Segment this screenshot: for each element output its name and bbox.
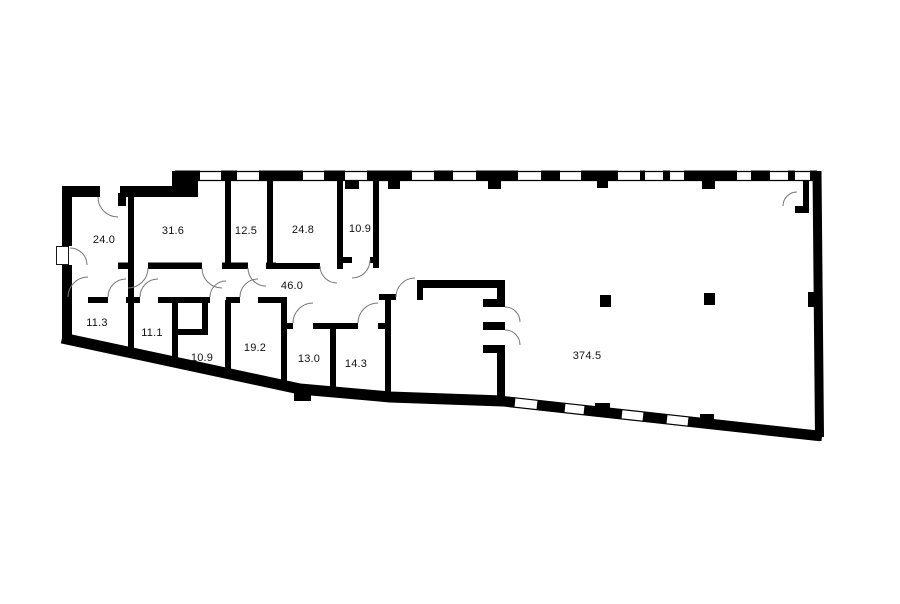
wall-14-3-east: [385, 300, 391, 397]
column-hall-east: [704, 293, 715, 305]
partition-10-9-19-2: [225, 300, 231, 376]
exterior-walls: [57, 171, 823, 441]
pilaster-right-wall: [808, 292, 818, 307]
room-label-12-5: 12.5: [235, 225, 257, 237]
wall-lobby-east-c: [497, 345, 505, 402]
floor-plan-canvas: 24.0 31.6 12.5 24.8 10.9 46.0 11.3 11.1 …: [0, 0, 900, 604]
room-label-374-5: 374.5: [573, 350, 602, 362]
room-label-46-0: 46.0: [281, 280, 303, 292]
left-window-frame: [57, 247, 69, 265]
wall-lobby-east-b: [497, 322, 505, 330]
wall-24-8-bottom: [273, 263, 320, 269]
room-label-10-9-bottom: 10.9: [191, 352, 213, 364]
closet-bottom-wall: [172, 329, 208, 335]
column-hall-west: [600, 295, 611, 307]
top-wall-segments: [175, 171, 817, 182]
room-label-13-0: 13.0: [298, 353, 320, 365]
room-label-19-2: 19.2: [244, 342, 266, 354]
bottom-wall-segments: [501, 401, 822, 436]
partition-12-5-24-8: [267, 181, 273, 263]
room-label-14-3: 14.3: [345, 358, 367, 370]
room-label-10-9-top: 10.9: [349, 223, 371, 235]
wall-left-lower: [62, 265, 72, 342]
room-label-24-8: 24.8: [292, 224, 314, 236]
wall-passage-jog: [379, 294, 396, 300]
partition-13-0-14-3: [330, 323, 336, 392]
partition-24-8-10-9: [337, 181, 343, 269]
wall-10-9-bottom-a: [343, 257, 352, 263]
room-label-11-1: 11.1: [141, 327, 162, 339]
floor-plan-svg: [0, 0, 900, 604]
partition-11-3-11-1: [128, 300, 134, 356]
partition-19-2-13-0: [281, 297, 287, 386]
room-label-31-6: 31.6: [162, 225, 184, 237]
wall-top-low-right: [120, 186, 178, 197]
wall-bottom-step: [294, 386, 311, 401]
partition-31-6-12-5: [225, 181, 231, 263]
wall-lobby-top: [417, 280, 505, 288]
columns-pilasters: [345, 181, 818, 422]
wall-lobby-east-a: [497, 288, 505, 307]
entry-vestibule-stub: [795, 206, 805, 213]
partition-10-9-east: [373, 181, 379, 268]
room-label-11-3: 11.3: [86, 317, 107, 329]
room-label-24-0: 24.0: [93, 234, 115, 246]
wall-left-upper: [62, 186, 72, 246]
door-stub-24-0: [118, 193, 126, 206]
